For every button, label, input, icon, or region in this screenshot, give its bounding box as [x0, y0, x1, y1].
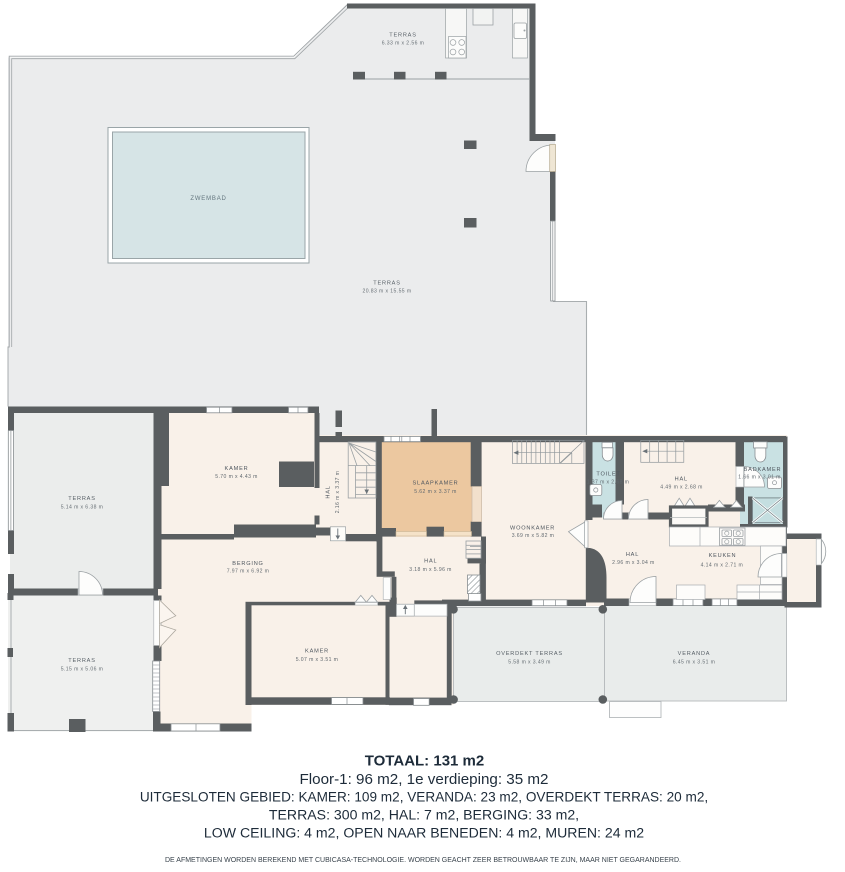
svg-text:VERANDA: VERANDA: [678, 651, 711, 657]
svg-text:TERRAS: TERRAS: [389, 33, 417, 39]
svg-text:7.97 m x 6.92 m: 7.97 m x 6.92 m: [227, 569, 270, 575]
svg-text:HAL: HAL: [326, 485, 332, 498]
svg-text:OVERDEKT TERRAS: OVERDEKT TERRAS: [496, 651, 563, 657]
svg-text:TERRAS: TERRAS: [68, 658, 96, 664]
svg-text:WOONKAMER: WOONKAMER: [510, 526, 555, 532]
svg-text:6.45 m x 3.51 m: 6.45 m x 3.51 m: [673, 659, 716, 665]
svg-text:2.16 m x 3.37 m: 2.16 m x 3.37 m: [335, 471, 341, 514]
svg-text:5.58 m x 3.49 m: 5.58 m x 3.49 m: [508, 659, 551, 665]
svg-text:SLAAPKAMER: SLAAPKAMER: [413, 481, 459, 487]
svg-text:HAL: HAL: [424, 559, 437, 565]
svg-text:4.49 m x 2.68 m: 4.49 m x 2.68 m: [660, 484, 703, 490]
svg-text:TERRAS: TERRAS: [68, 496, 96, 502]
svg-text:KAMER: KAMER: [305, 649, 329, 655]
svg-text:LOW CEILING: 4 m2, OPEN NAAR B: LOW CEILING: 4 m2, OPEN NAAR BENEDEN: 4 …: [204, 824, 644, 840]
svg-text:20.83 m x 15.55 m: 20.83 m x 15.55 m: [363, 289, 412, 295]
svg-text:TERRAS: 300 m2, HAL: 7 m2, BER: TERRAS: 300 m2, HAL: 7 m2, BERGING: 33 m…: [269, 806, 579, 822]
svg-text:Floor-1: 96 m2, 1e verdieping:: Floor-1: 96 m2, 1e verdieping: 35 m2: [299, 771, 548, 788]
svg-text:3.69 m x 5.82 m: 3.69 m x 5.82 m: [512, 533, 555, 539]
svg-text:3.18 m x 5.96 m: 3.18 m x 5.96 m: [409, 567, 452, 573]
svg-text:KAMER: KAMER: [225, 466, 249, 472]
svg-text:5.14 m x 6.38 m: 5.14 m x 6.38 m: [61, 504, 104, 510]
svg-text:BADKAMER: BADKAMER: [744, 467, 782, 473]
svg-text:4.14 m x 2.71 m: 4.14 m x 2.71 m: [701, 563, 744, 569]
svg-text:HAL: HAL: [675, 477, 688, 483]
svg-text:5.62 m x 3.37 m: 5.62 m x 3.37 m: [414, 489, 457, 495]
svg-text:HAL: HAL: [626, 552, 639, 558]
svg-text:6.33 m x 2.56 m: 6.33 m x 2.56 m: [382, 41, 425, 47]
svg-text:ZWEMBAD: ZWEMBAD: [190, 196, 226, 202]
svg-text:1.37 m x 2.68 m: 1.37 m x 2.68 m: [587, 480, 630, 486]
svg-text:UITGESLOTEN GEBIED: KAMER: 109: UITGESLOTEN GEBIED: KAMER: 109 m2, VERAN…: [140, 790, 708, 805]
svg-text:KEUKEN: KEUKEN: [709, 553, 737, 559]
svg-text:TOILET: TOILET: [596, 471, 620, 477]
svg-text:1.66 m x 3.01 m: 1.66 m x 3.01 m: [738, 474, 781, 480]
svg-text:2.96 m x 3.04 m: 2.96 m x 3.04 m: [612, 560, 655, 566]
svg-text:TERRAS: TERRAS: [373, 280, 401, 286]
svg-text:5.70 m x 4.43 m: 5.70 m x 4.43 m: [215, 474, 258, 480]
svg-text:DE AFMETINGEN WORDEN BEREKEND: DE AFMETINGEN WORDEN BEREKEND MET CUBICA…: [165, 857, 681, 864]
svg-text:BERGING: BERGING: [232, 561, 263, 567]
svg-text:TOTAAL: 131 m2: TOTAAL: 131 m2: [365, 753, 484, 770]
svg-text:5.15 m x 5.06 m: 5.15 m x 5.06 m: [61, 666, 104, 672]
svg-text:5.07 m x 3.51 m: 5.07 m x 3.51 m: [296, 657, 339, 663]
